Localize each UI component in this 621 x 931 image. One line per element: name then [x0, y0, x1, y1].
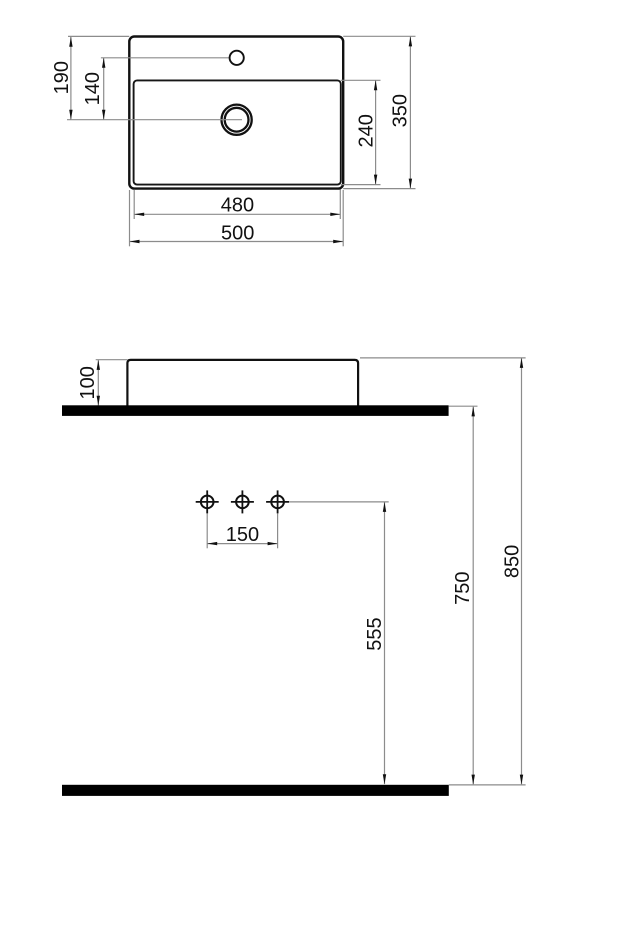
svg-text:480: 480 — [221, 195, 254, 217]
svg-text:140: 140 — [82, 72, 104, 105]
svg-text:150: 150 — [226, 524, 259, 546]
svg-text:100: 100 — [77, 366, 99, 399]
svg-text:555: 555 — [364, 617, 386, 650]
svg-text:240: 240 — [356, 114, 378, 147]
svg-text:850: 850 — [502, 545, 524, 578]
svg-text:500: 500 — [221, 222, 254, 244]
svg-text:350: 350 — [390, 94, 412, 127]
svg-text:750: 750 — [452, 572, 474, 605]
svg-text:190: 190 — [51, 61, 73, 94]
